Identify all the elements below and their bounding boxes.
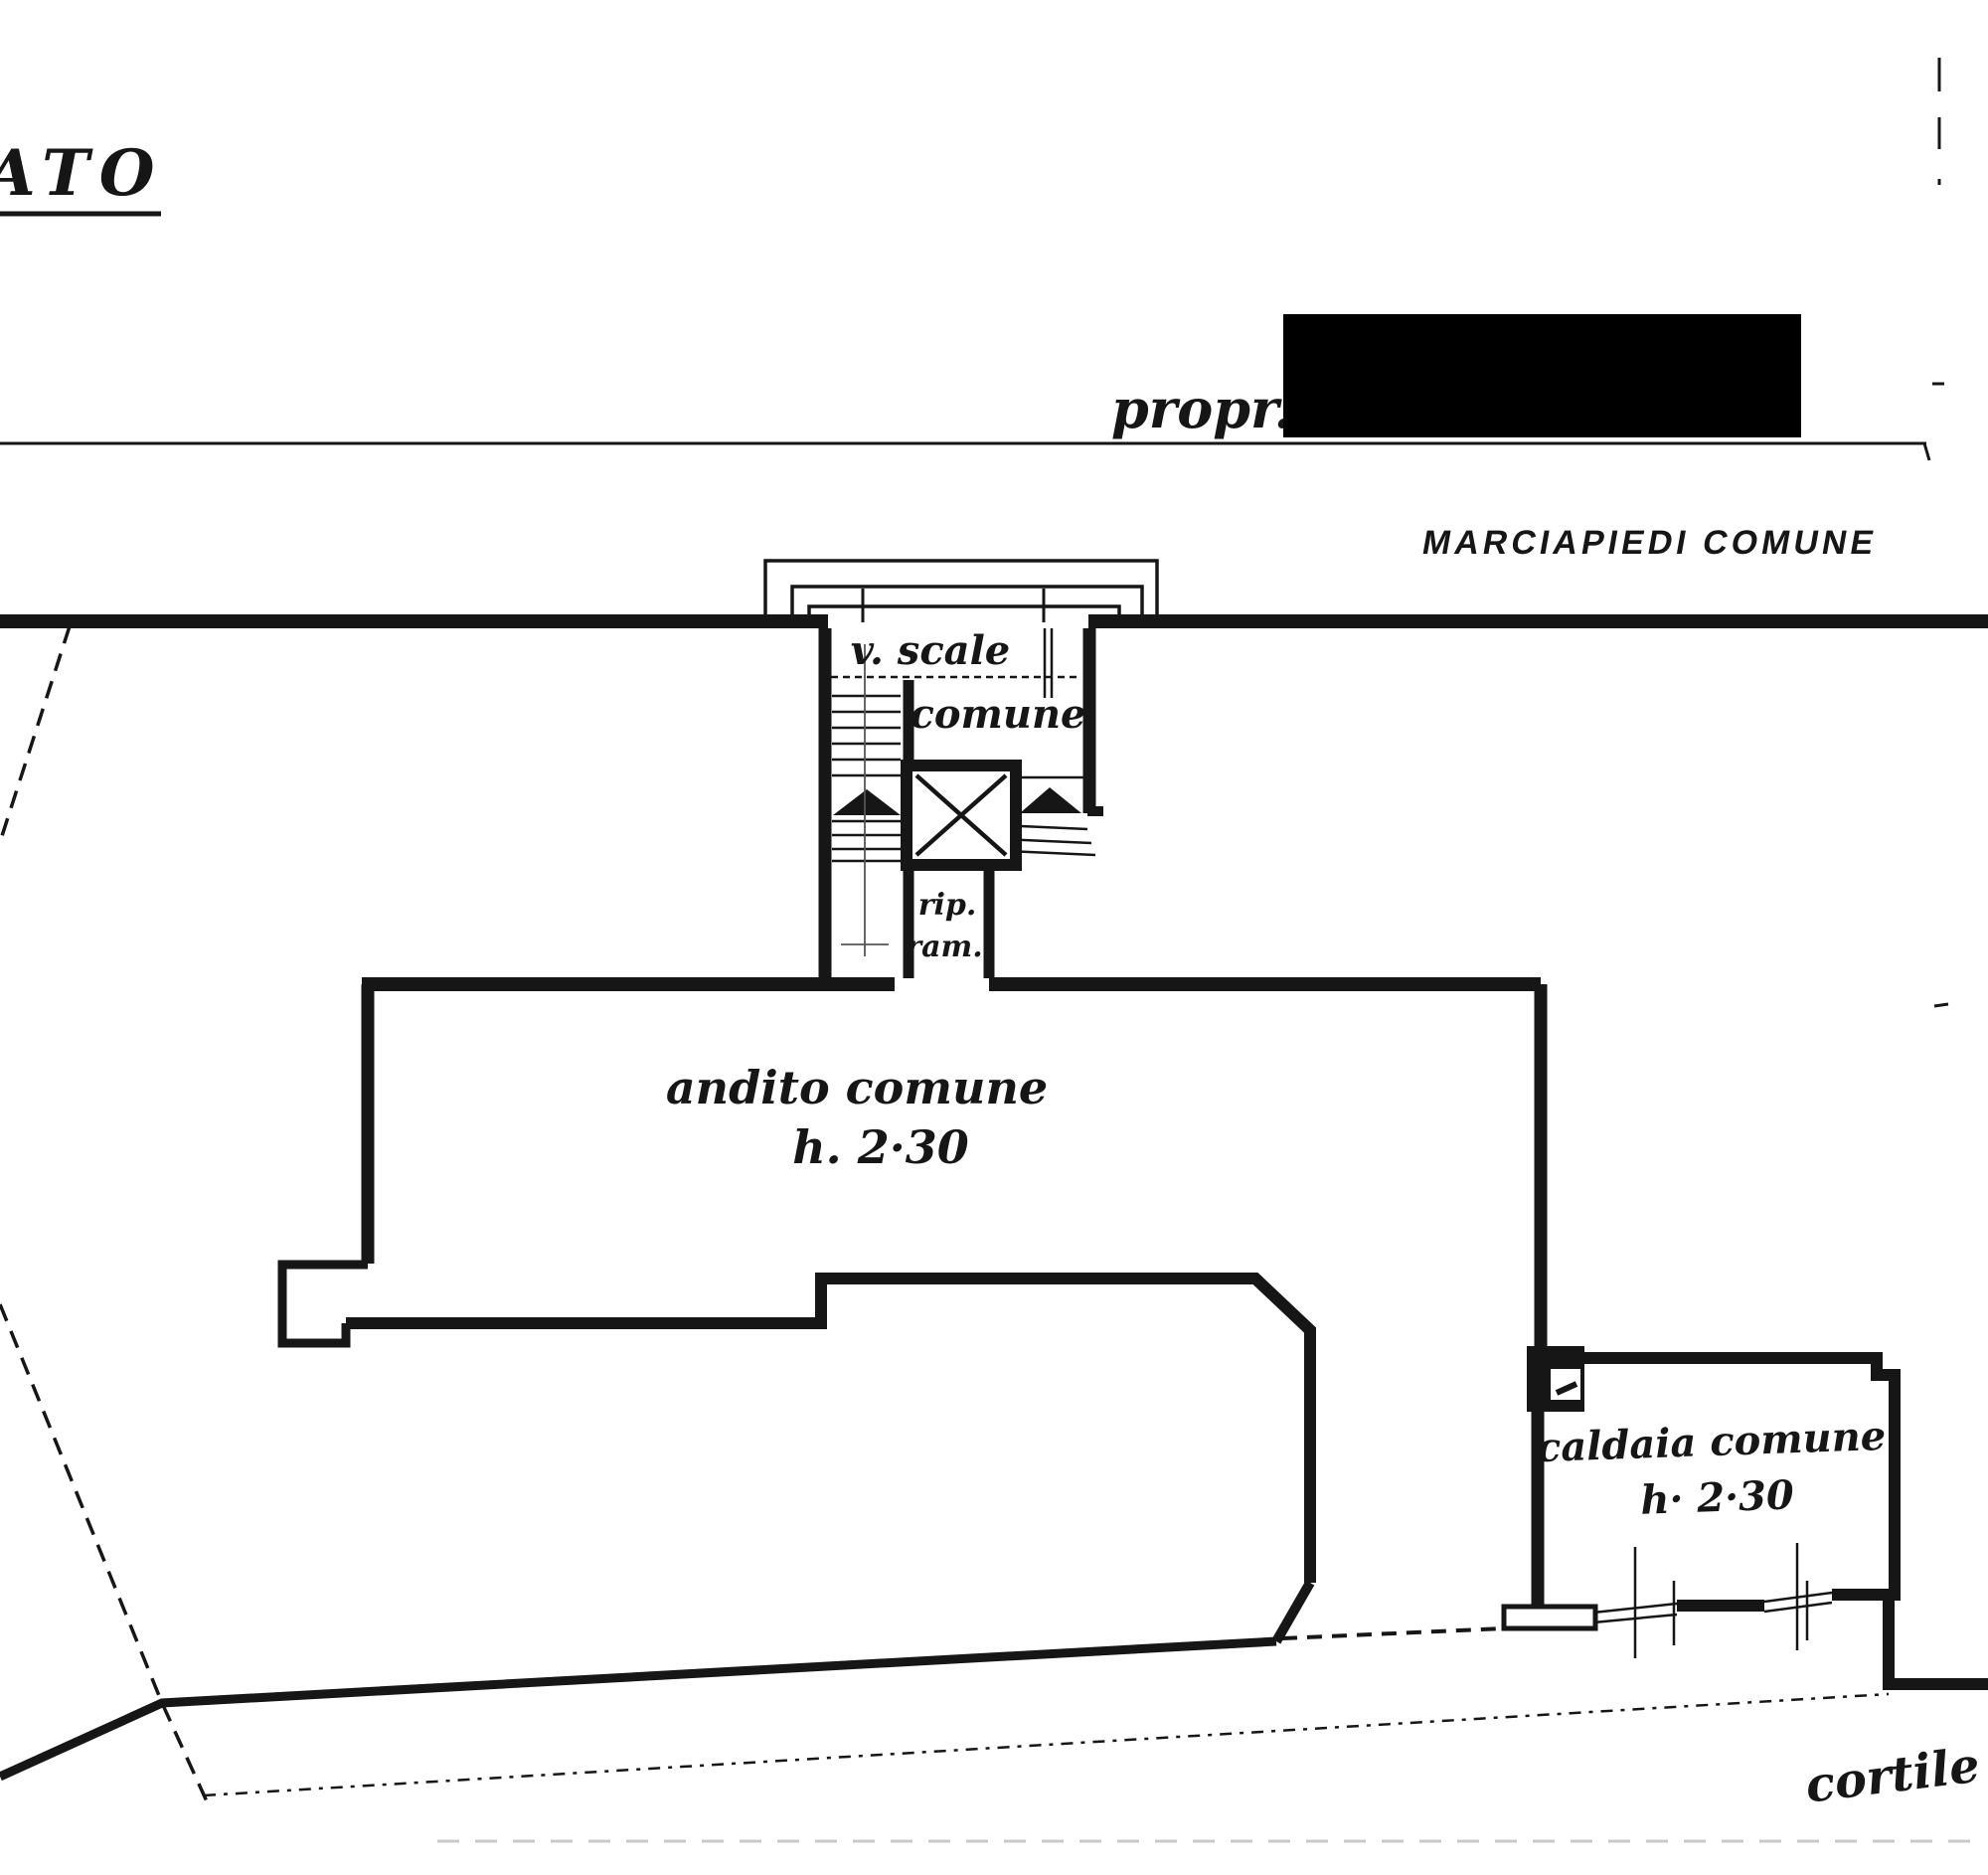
plan-title: ATO <box>0 136 165 214</box>
sidewalk-label: MARCIAPIEDI COMUNE <box>1419 524 1881 562</box>
owner-label: propr. <box>1111 377 1292 440</box>
courtyard-label: cortile <box>1802 1738 1982 1814</box>
courtyard-step-wall <box>1889 1601 1988 1684</box>
hallway-room: andito comune h. 2·30 <box>282 984 1541 1641</box>
redaction-box <box>1283 314 1801 437</box>
upper-boundary-line <box>0 443 1929 460</box>
upper-flight-lines <box>1045 628 1052 698</box>
entrance-steps <box>765 561 1157 622</box>
courtyard-dashed-line <box>204 1694 1889 1795</box>
boiler-bottom-wall <box>1677 1595 1901 1606</box>
hallway-bottom-chamfer <box>1276 1583 1310 1641</box>
boiler-label-line2: h· 2·30 <box>1640 1471 1795 1523</box>
title-fragment-label: ATO <box>0 136 165 211</box>
hallway-label-line1: andito comune <box>666 1061 1048 1114</box>
stair-walk-line <box>841 644 889 956</box>
stair-direction-arrow-left <box>833 789 901 815</box>
stair-direction-arrow-right <box>1020 787 1081 813</box>
courtyard-boundary-wall <box>0 1641 1276 1777</box>
stairwell: v. scale comune rip. ram. <box>825 627 1103 978</box>
hallway-left-notch <box>282 1265 368 1343</box>
boiler-label-line1: caldaia comune <box>1536 1413 1887 1471</box>
floor-plan-drawing: ATO propr. MARCIAPIEDI COMUNE <box>0 0 1988 1875</box>
edge-reference-marks <box>1932 58 1948 1006</box>
hallway-label-line2: h. 2·30 <box>792 1120 969 1174</box>
left-stair-treads <box>832 696 901 861</box>
storage-label-line1: rip. <box>918 888 977 923</box>
stairwell-label-line1: v. scale <box>851 627 1011 674</box>
floor-plan-page: ATO propr. MARCIAPIEDI COMUNE <box>0 0 1988 1875</box>
boiler-room: caldaia comune h· 2·30 <box>1504 1346 1988 1684</box>
stairwell-label-line2: comune <box>911 691 1086 738</box>
boundary-dashed-passage <box>1282 1628 1504 1638</box>
hallway-bottom-wall <box>346 1278 1310 1583</box>
storage-label-line2: ram. <box>906 930 982 964</box>
boiler-threshold <box>1504 1607 1595 1628</box>
boundary-dashed-upper <box>0 626 70 842</box>
owner-annotation: propr. <box>1111 314 1801 440</box>
